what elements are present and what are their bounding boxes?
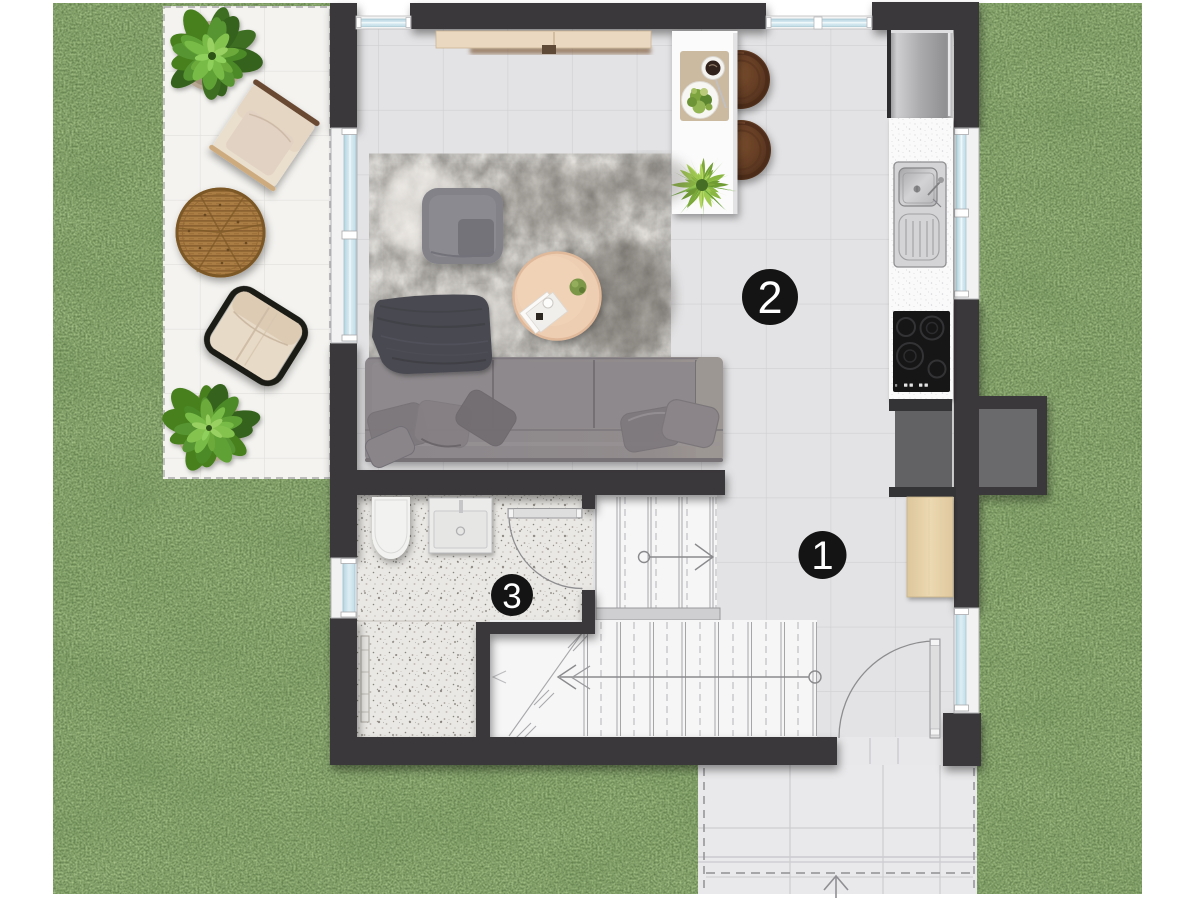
svg-text:2: 2: [757, 272, 782, 323]
svg-text:1: 1: [811, 534, 833, 578]
svg-text:3: 3: [502, 577, 521, 616]
